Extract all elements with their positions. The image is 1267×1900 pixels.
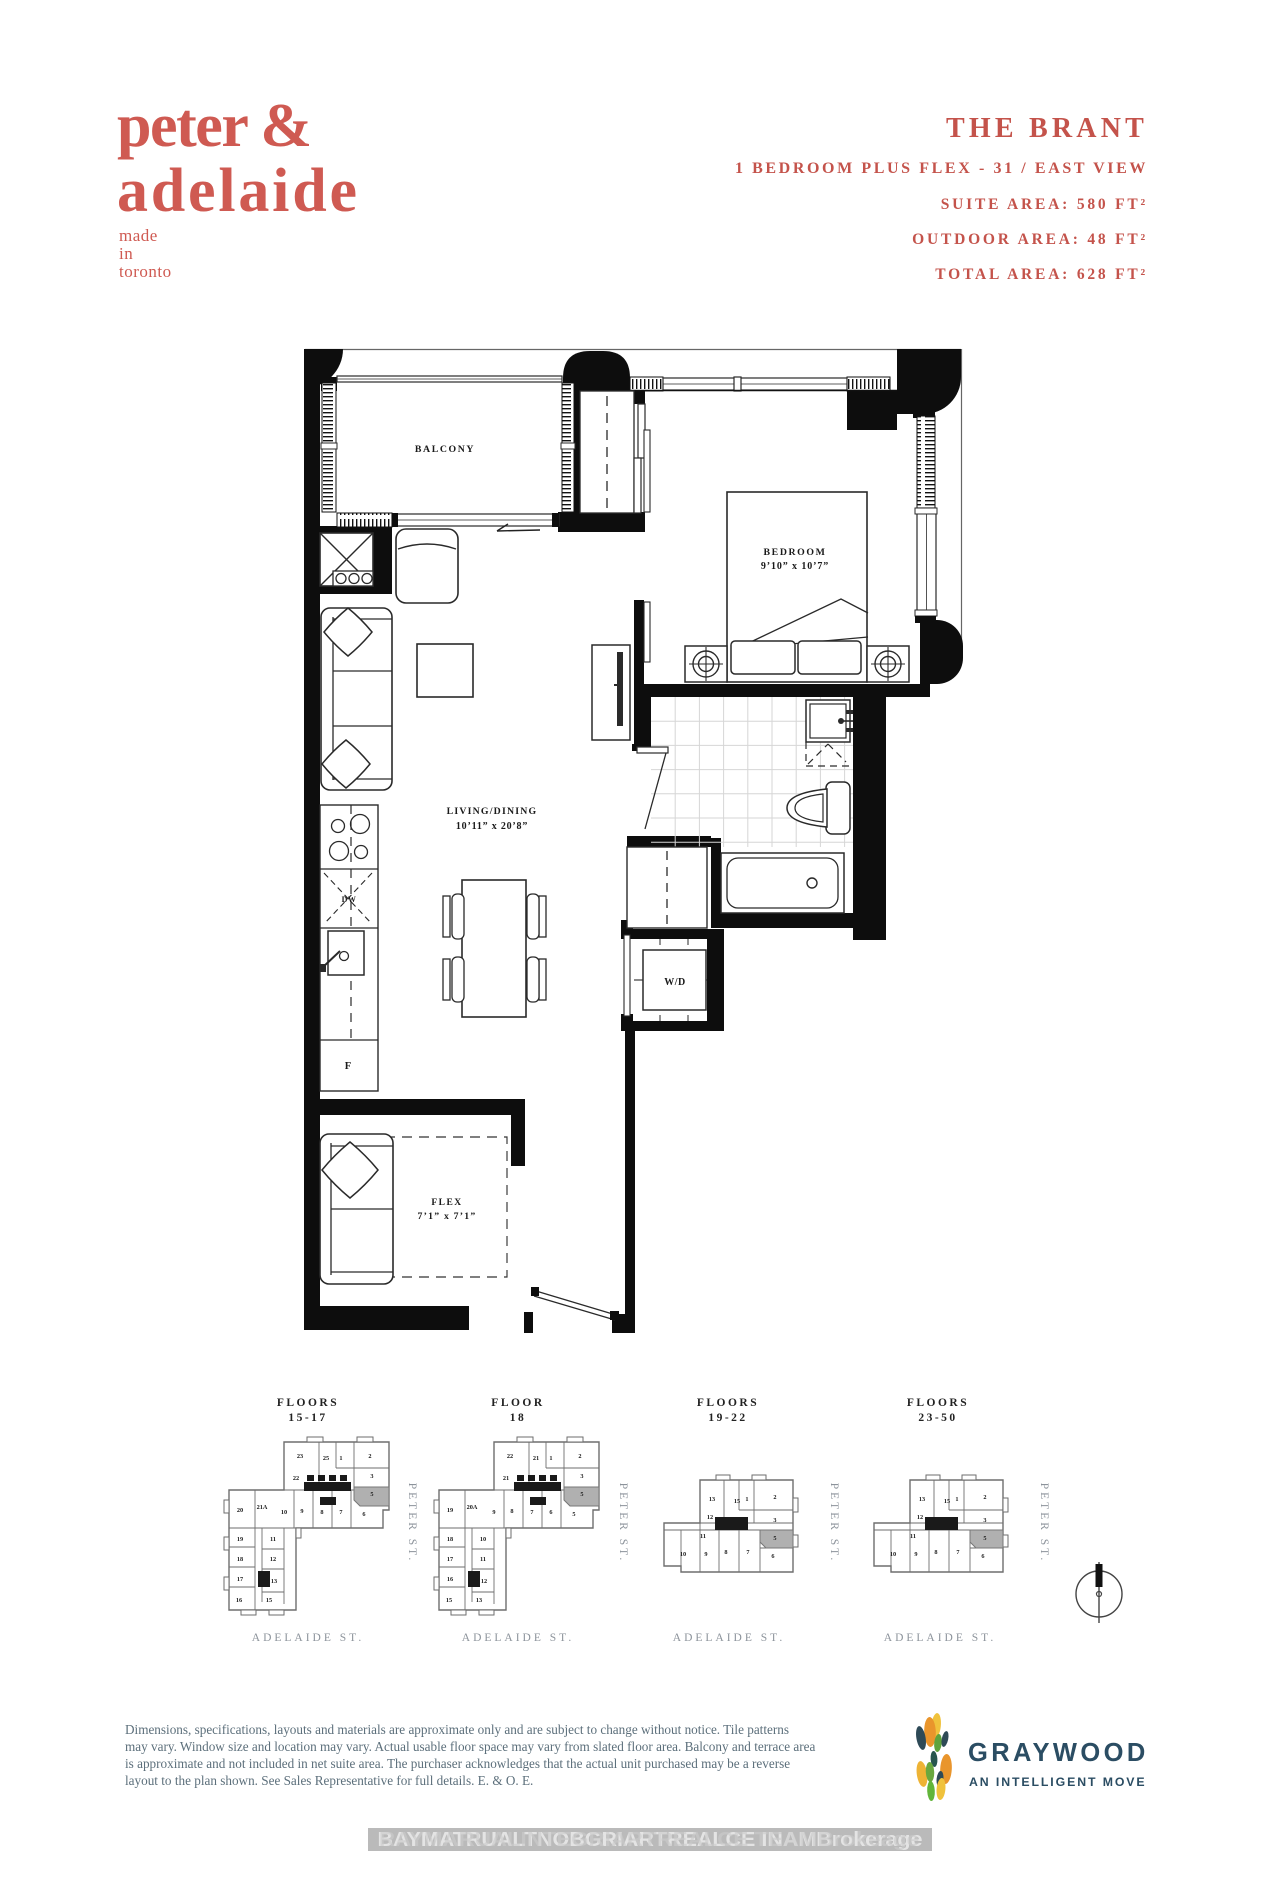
svg-text:OUTDOOR AREA: 48 FT²: OUTDOOR AREA: 48 FT² [912, 231, 1148, 248]
svg-text:19-22: 19-22 [708, 1412, 747, 1424]
svg-text:17: 17 [447, 1556, 453, 1563]
svg-text:23: 23 [297, 1453, 303, 1460]
svg-text:12: 12 [917, 1514, 923, 1521]
svg-text:FLEX: FLEX [431, 1198, 462, 1208]
svg-text:toronto: toronto [119, 262, 172, 281]
svg-text:ADELAIDE ST.: ADELAIDE ST. [673, 1632, 785, 1644]
svg-text:9: 9 [704, 1551, 707, 1558]
svg-text:11: 11 [700, 1533, 706, 1540]
svg-text:15-17: 15-17 [288, 1412, 327, 1424]
svg-text:PETER ST.: PETER ST. [617, 1483, 629, 1563]
svg-text:13: 13 [476, 1597, 482, 1604]
svg-text:8: 8 [320, 1509, 323, 1516]
svg-text:THE BRANT: THE BRANT [946, 113, 1148, 144]
svg-text:18: 18 [447, 1536, 453, 1543]
svg-text:FLOORS: FLOORS [277, 1397, 339, 1409]
svg-text:8: 8 [510, 1508, 513, 1515]
svg-text:AN INTELLIGENT MOVE: AN INTELLIGENT MOVE [969, 1775, 1147, 1789]
svg-text:7: 7 [339, 1509, 342, 1516]
svg-text:11: 11 [270, 1536, 276, 1543]
svg-text:6: 6 [549, 1509, 552, 1516]
svg-text:12: 12 [270, 1556, 276, 1563]
svg-text:DW: DW [342, 895, 357, 904]
svg-text:PETER ST.: PETER ST. [406, 1483, 418, 1563]
svg-text:13: 13 [709, 1496, 715, 1503]
svg-text:23-50: 23-50 [918, 1412, 957, 1424]
svg-text:made: made [119, 226, 158, 245]
svg-text:5: 5 [773, 1535, 776, 1542]
svg-text:1: 1 [339, 1455, 342, 1462]
svg-text:8: 8 [934, 1549, 937, 1556]
svg-text:20: 20 [237, 1507, 243, 1514]
svg-text:19: 19 [237, 1536, 243, 1543]
svg-text:7: 7 [746, 1549, 749, 1556]
svg-text:1 BEDROOM PLUS FLEX - 31 / EAS: 1 BEDROOM PLUS FLEX - 31 / EAST VIEW [735, 160, 1148, 177]
svg-text:13: 13 [271, 1578, 277, 1585]
svg-text:ADELAIDE ST.: ADELAIDE ST. [252, 1632, 364, 1644]
svg-text:22: 22 [507, 1453, 513, 1460]
svg-text:13: 13 [919, 1496, 925, 1503]
svg-text:6: 6 [771, 1553, 774, 1560]
svg-text:SUITE AREA: 580 FT²: SUITE AREA: 580 FT² [941, 196, 1148, 213]
svg-text:layout to the plan shown. See: layout to the plan shown. See Sales Repr… [125, 1773, 533, 1788]
svg-text:17: 17 [237, 1576, 243, 1583]
svg-text:15: 15 [266, 1597, 272, 1604]
svg-text:2: 2 [368, 1453, 371, 1460]
svg-text:2: 2 [983, 1494, 986, 1501]
svg-text:BALCONY: BALCONY [415, 444, 475, 455]
svg-text:5: 5 [370, 1491, 373, 1498]
svg-text:15: 15 [944, 1498, 950, 1505]
svg-text:3: 3 [773, 1517, 776, 1524]
svg-text:21A: 21A [257, 1504, 268, 1511]
svg-text:11: 11 [480, 1556, 486, 1563]
svg-text:5: 5 [572, 1511, 575, 1518]
svg-text:15: 15 [446, 1597, 452, 1604]
svg-text:2: 2 [578, 1453, 581, 1460]
svg-text:12: 12 [707, 1514, 713, 1521]
svg-text:1: 1 [745, 1496, 748, 1503]
svg-text:W/D: W/D [664, 977, 686, 988]
svg-text:10: 10 [480, 1536, 486, 1543]
svg-text:1: 1 [549, 1455, 552, 1462]
svg-text:F: F [345, 1061, 351, 1072]
svg-text:22: 22 [293, 1475, 299, 1482]
svg-text:9: 9 [914, 1551, 917, 1558]
svg-text:3: 3 [580, 1473, 583, 1480]
svg-text:FLOORS: FLOORS [697, 1397, 759, 1409]
svg-text:10’11” x 20’8”: 10’11” x 20’8” [456, 821, 528, 832]
svg-text:GRAYWOOD: GRAYWOOD [968, 1739, 1149, 1767]
svg-text:18: 18 [510, 1412, 527, 1424]
svg-text:adelaide: adelaide [117, 157, 358, 225]
svg-text:6: 6 [362, 1511, 365, 1518]
svg-text:10: 10 [281, 1509, 287, 1516]
svg-text:Dimensions, specifications, la: Dimensions, specifications, layouts and … [125, 1722, 789, 1737]
svg-text:FLOORS: FLOORS [907, 1397, 969, 1409]
svg-text:BEDROOM: BEDROOM [764, 547, 827, 558]
svg-text:1: 1 [955, 1496, 958, 1503]
svg-text:7: 7 [530, 1509, 533, 1516]
svg-text:7: 7 [956, 1549, 959, 1556]
svg-text:RAYMARUALINTEGRIARTREALCE TEAM: RAYMARUALINTEGRIARTREALCE TEAMBrokeage [379, 1828, 919, 1851]
svg-text:3: 3 [983, 1517, 986, 1524]
svg-text:7’1” x 7’1”: 7’1” x 7’1” [418, 1211, 477, 1222]
svg-text:PETER ST.: PETER ST. [1038, 1483, 1050, 1563]
svg-text:10: 10 [890, 1551, 896, 1558]
svg-text:6: 6 [981, 1553, 984, 1560]
svg-text:peter &: peter & [117, 92, 313, 160]
svg-text:18: 18 [237, 1556, 243, 1563]
svg-text:is approximate and not include: is approximate and not included in net s… [125, 1756, 790, 1771]
svg-text:16: 16 [236, 1597, 242, 1604]
svg-text:5: 5 [983, 1535, 986, 1542]
svg-text:25: 25 [323, 1455, 329, 1462]
svg-text:ADELAIDE ST.: ADELAIDE ST. [462, 1632, 574, 1644]
svg-text:ADELAIDE ST.: ADELAIDE ST. [884, 1632, 996, 1644]
svg-text:5: 5 [580, 1491, 583, 1498]
svg-text:11: 11 [910, 1533, 916, 1540]
svg-text:9’10” x 10’7”: 9’10” x 10’7” [761, 561, 829, 572]
svg-text:8: 8 [724, 1549, 727, 1556]
svg-text:21: 21 [503, 1475, 509, 1482]
svg-text:in: in [119, 244, 133, 263]
svg-text:may vary. Window size and loca: may vary. Window size and location may v… [125, 1739, 815, 1754]
svg-text:9: 9 [492, 1509, 495, 1516]
svg-text:16: 16 [447, 1576, 453, 1583]
svg-text:PETER ST.: PETER ST. [828, 1483, 840, 1563]
svg-text:FLOOR: FLOOR [491, 1397, 544, 1409]
svg-text:TOTAL AREA: 628 FT²: TOTAL AREA: 628 FT² [935, 266, 1148, 283]
svg-text:19: 19 [447, 1507, 453, 1514]
svg-text:10: 10 [680, 1551, 686, 1558]
svg-text:21: 21 [533, 1455, 539, 1462]
svg-text:12: 12 [481, 1578, 487, 1585]
svg-text:9: 9 [300, 1508, 303, 1515]
svg-text:3: 3 [370, 1473, 373, 1480]
svg-text:LIVING/DINING: LIVING/DINING [447, 806, 538, 817]
svg-text:2: 2 [773, 1494, 776, 1501]
svg-text:20A: 20A [467, 1504, 478, 1511]
svg-text:15: 15 [734, 1498, 740, 1505]
